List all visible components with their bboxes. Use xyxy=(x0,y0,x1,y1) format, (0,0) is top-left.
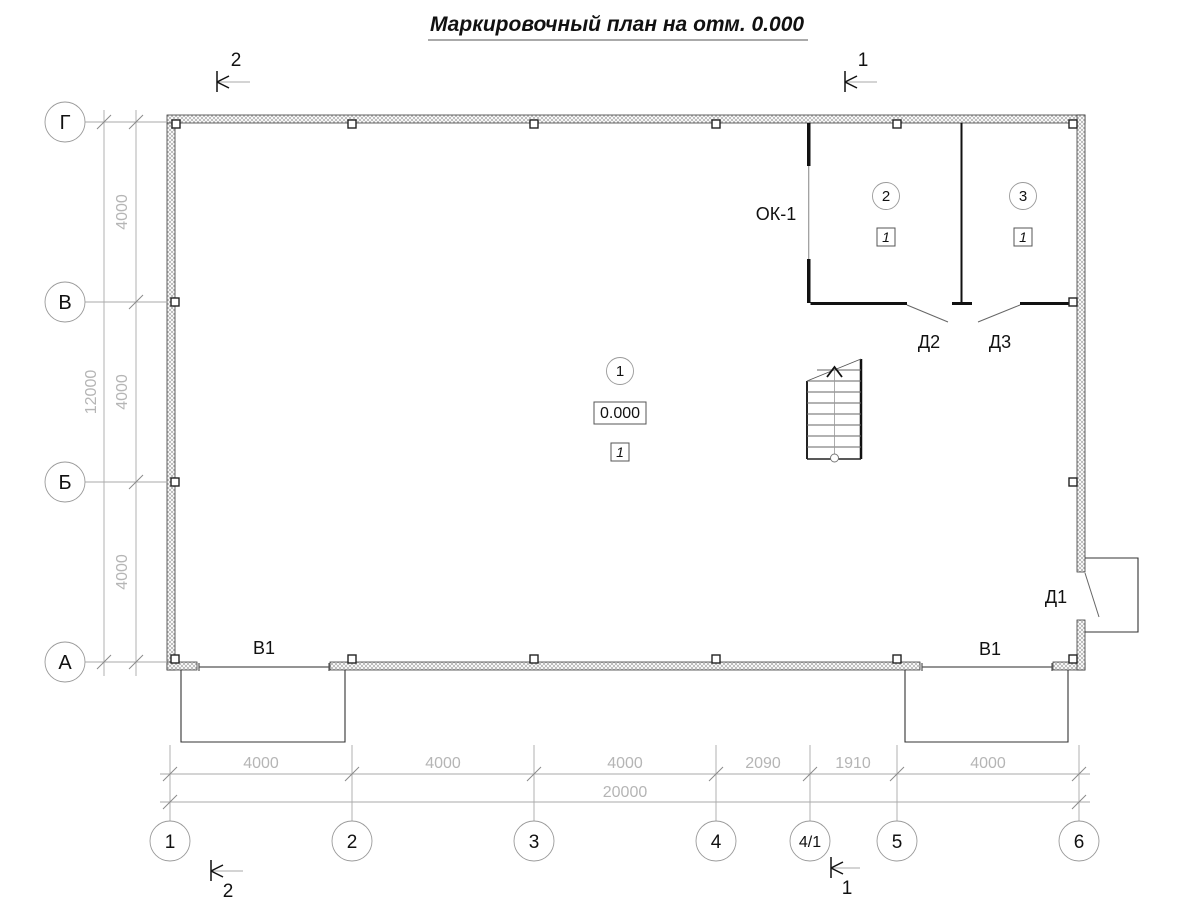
element-labels: ОК-1 Д2 Д3 Д1 В1 В1 xyxy=(253,204,1067,659)
axis-num-1: 1 xyxy=(165,832,176,853)
axis-letter-v: В xyxy=(58,292,71,314)
interior-partitions xyxy=(807,123,1077,305)
room2-number: 2 xyxy=(882,188,890,205)
door-d3-leaf xyxy=(978,305,1020,322)
axis-letter-a: А xyxy=(58,652,72,674)
section-num-bottom-left: 2 xyxy=(223,881,234,900)
dim-left-3: 4000 xyxy=(114,554,131,590)
dim-bottom-3: 4000 xyxy=(607,755,643,772)
axis-letter-b: Б xyxy=(58,472,71,494)
section-num-top-right: 1 xyxy=(858,50,869,71)
axis-num-4: 4 xyxy=(711,832,722,853)
plan-drawing: Маркировочный план на отм. 0.000 xyxy=(0,0,1200,900)
axis-num-2: 2 xyxy=(347,832,358,853)
porch-d1 xyxy=(1085,558,1138,632)
axis-num-6: 6 xyxy=(1074,832,1085,853)
hall-type-mark: 1 xyxy=(616,444,624,460)
door-d1-label: Д1 xyxy=(1045,587,1067,607)
axis-num-3: 3 xyxy=(529,832,540,853)
room3-type-mark: 1 xyxy=(1019,229,1027,245)
door-d1-leaf xyxy=(1085,573,1099,617)
hall-elevation: 0.000 xyxy=(600,405,640,422)
stairs-start-circle xyxy=(831,454,839,462)
gate-v1-left-label: В1 xyxy=(253,638,275,658)
door-d2-leaf xyxy=(907,305,948,322)
room-marks: 1 0.000 1 2 1 3 1 xyxy=(594,183,1037,462)
section-mark-bottom-left: 2 xyxy=(211,860,243,900)
left-axes: Г В Б А 4000 4000 4000 12000 xyxy=(45,102,167,682)
dim-left-total: 12000 xyxy=(83,370,100,415)
dim-bottom-6: 4000 xyxy=(970,755,1006,772)
dim-bottom-5: 1910 xyxy=(835,755,871,772)
bottom-axes: 4000 4000 4000 2090 1910 4000 20000 1 2 … xyxy=(150,745,1099,861)
section-mark-bottom-right: 1 xyxy=(831,857,860,899)
room2-type-mark: 1 xyxy=(882,229,890,245)
window-ok1-label: ОК-1 xyxy=(756,204,797,224)
dim-bottom-4: 2090 xyxy=(745,755,781,772)
dim-bottom-2: 4000 xyxy=(425,755,461,772)
stairs xyxy=(807,359,861,462)
section-mark-top-right: 1 xyxy=(845,50,877,92)
dim-left-1: 4000 xyxy=(114,194,131,230)
column-markers xyxy=(171,120,1077,663)
axis-num-5: 5 xyxy=(892,832,903,853)
section-mark-top-left: 2 xyxy=(217,50,250,92)
hall-number: 1 xyxy=(616,363,624,380)
room3-number: 3 xyxy=(1019,188,1027,205)
exterior-walls xyxy=(167,115,1085,670)
axis-letter-g: Г xyxy=(60,112,71,134)
floor-plan-sheet: Маркировочный план на отм. 0.000 xyxy=(0,0,1200,900)
section-num-top-left: 2 xyxy=(231,50,242,71)
dim-bottom-1: 4000 xyxy=(243,755,279,772)
dim-left-2: 4000 xyxy=(114,374,131,410)
porch-right xyxy=(905,670,1068,742)
door-d2-label: Д2 xyxy=(918,332,940,352)
section-num-bottom-right: 1 xyxy=(842,878,853,899)
stair-treads xyxy=(807,370,861,447)
page-title: Маркировочный план на отм. 0.000 xyxy=(430,13,804,36)
dim-bottom-total: 20000 xyxy=(603,784,648,801)
door-d3-label: Д3 xyxy=(989,332,1011,352)
axis-num-4-1: 4/1 xyxy=(799,834,821,851)
gate-v1-right-label: В1 xyxy=(979,639,1001,659)
porch-left xyxy=(181,670,345,742)
